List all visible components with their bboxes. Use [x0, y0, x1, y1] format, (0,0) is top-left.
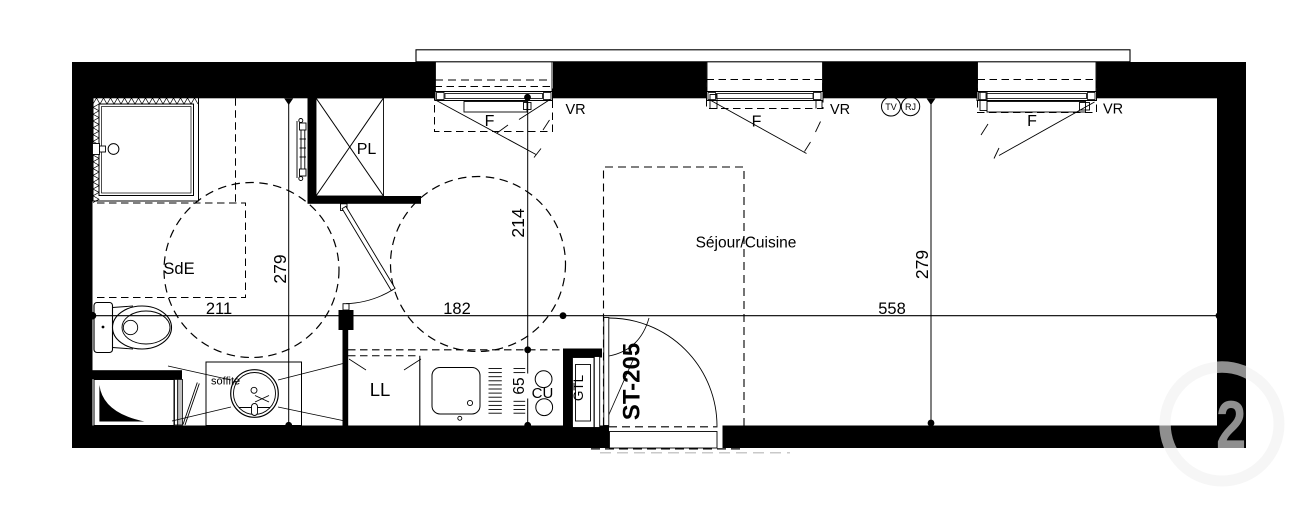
- svg-text:VR: VR: [830, 102, 850, 118]
- svg-text:279: 279: [270, 254, 290, 283]
- svg-text:VR: VR: [1103, 102, 1123, 118]
- svg-text:Séjour/Cuisine: Séjour/Cuisine: [696, 235, 797, 252]
- svg-text:LL: LL: [370, 379, 391, 400]
- svg-text:2: 2: [1216, 387, 1246, 463]
- svg-text:PL: PL: [357, 141, 377, 158]
- svg-text:TV: TV: [885, 102, 897, 112]
- svg-text:F: F: [752, 114, 762, 131]
- svg-text:558: 558: [878, 300, 906, 318]
- svg-text:GTL: GTL: [571, 374, 586, 401]
- svg-text:F: F: [485, 113, 495, 130]
- svg-text:182: 182: [443, 300, 471, 318]
- svg-text:279: 279: [912, 250, 932, 279]
- svg-text:soffite: soffite: [211, 376, 240, 388]
- svg-text:211: 211: [206, 300, 232, 318]
- svg-text:SdE: SdE: [163, 260, 194, 278]
- svg-text:F: F: [1027, 113, 1037, 130]
- svg-text:VR: VR: [566, 102, 586, 118]
- svg-text:65: 65: [511, 377, 528, 394]
- svg-text:CU: CU: [532, 385, 554, 402]
- svg-text:214: 214: [508, 208, 528, 237]
- svg-text:ST-205: ST-205: [619, 343, 646, 420]
- svg-text:RJ: RJ: [905, 102, 916, 112]
